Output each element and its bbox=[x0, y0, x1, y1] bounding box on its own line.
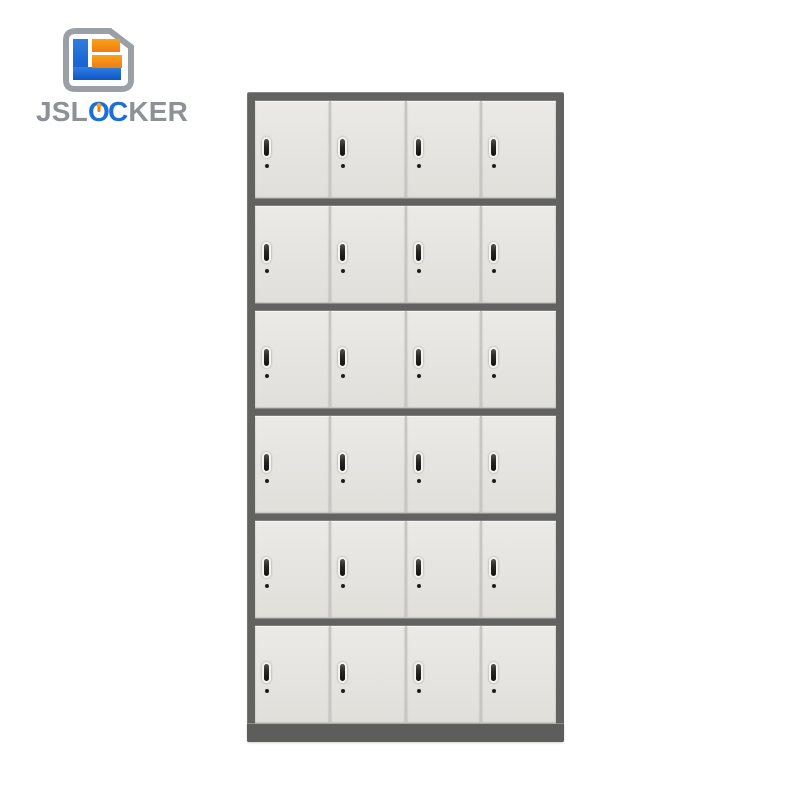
keyhole-icon bbox=[341, 479, 345, 483]
door-handle-icon bbox=[338, 137, 347, 158]
locker-door bbox=[482, 311, 556, 408]
logo-orange-top-bar bbox=[92, 39, 120, 52]
locker-row bbox=[255, 101, 556, 198]
locker-door bbox=[407, 626, 481, 723]
product-image: JSLOCKER bbox=[0, 0, 800, 800]
door-handle-icon bbox=[262, 557, 271, 578]
keyhole-icon bbox=[417, 374, 421, 378]
brand-logo-icon bbox=[63, 28, 134, 92]
door-handle-icon bbox=[262, 242, 271, 263]
keyhole-icon bbox=[341, 269, 345, 273]
door-handle-icon bbox=[414, 242, 423, 263]
door-handle-icon bbox=[414, 557, 423, 578]
keyhole-icon bbox=[417, 689, 421, 693]
locker-door bbox=[482, 626, 556, 723]
door-handle-icon bbox=[414, 347, 423, 368]
keyhole-icon bbox=[265, 374, 269, 378]
keyhole-icon bbox=[341, 584, 345, 588]
locker-door bbox=[482, 206, 556, 303]
locker-row bbox=[255, 311, 556, 408]
door-handle-icon bbox=[489, 452, 498, 473]
locker-row bbox=[255, 521, 556, 618]
keyhole-icon bbox=[265, 689, 269, 693]
door-handle-icon bbox=[338, 662, 347, 683]
door-handle-icon bbox=[338, 347, 347, 368]
locker-door bbox=[331, 206, 405, 303]
locker-door bbox=[407, 521, 481, 618]
locker-row bbox=[255, 416, 556, 513]
brand-letter-o: O bbox=[88, 98, 110, 126]
locker-door bbox=[407, 311, 481, 408]
door-handle-icon bbox=[414, 137, 423, 158]
keyhole-icon bbox=[341, 374, 345, 378]
keyhole-icon bbox=[492, 164, 496, 168]
keyhole-icon bbox=[492, 479, 496, 483]
keyhole-icon bbox=[417, 584, 421, 588]
locker-door bbox=[255, 101, 329, 198]
door-handle-icon bbox=[414, 662, 423, 683]
door-handle-icon bbox=[489, 242, 498, 263]
locker-door bbox=[482, 101, 556, 198]
brand-name-prefix: JSL bbox=[36, 96, 88, 127]
door-handle-icon bbox=[338, 557, 347, 578]
keyhole-icon bbox=[492, 689, 496, 693]
keyhole-icon bbox=[417, 164, 421, 168]
locker-door bbox=[255, 311, 329, 408]
keyhole-icon bbox=[265, 584, 269, 588]
door-handle-icon bbox=[489, 557, 498, 578]
brand-name: JSLOCKER bbox=[36, 98, 196, 126]
keyhole-mark-icon bbox=[96, 103, 101, 108]
door-handle-icon bbox=[489, 137, 498, 158]
door-handle-icon bbox=[338, 242, 347, 263]
locker-door bbox=[331, 416, 405, 513]
locker-base bbox=[247, 723, 564, 742]
locker-row bbox=[255, 206, 556, 303]
locker-door bbox=[331, 521, 405, 618]
locker-door bbox=[255, 206, 329, 303]
keyhole-icon bbox=[265, 269, 269, 273]
locker-door bbox=[331, 626, 405, 723]
brand-name-suffix: KER bbox=[128, 96, 188, 127]
door-handle-icon bbox=[489, 347, 498, 368]
locker-door bbox=[255, 626, 329, 723]
locker-door bbox=[407, 101, 481, 198]
keyhole-icon bbox=[265, 479, 269, 483]
locker-door bbox=[255, 416, 329, 513]
locker-door bbox=[482, 521, 556, 618]
brand-logo: JSLOCKER bbox=[36, 28, 196, 126]
locker-door bbox=[331, 101, 405, 198]
locker-door bbox=[255, 521, 329, 618]
locker-door bbox=[482, 416, 556, 513]
door-handle-icon bbox=[262, 347, 271, 368]
logo-orange-middle-bar bbox=[92, 55, 122, 68]
locker-cabinet bbox=[247, 92, 564, 742]
locker-door bbox=[331, 311, 405, 408]
keyhole-icon bbox=[492, 374, 496, 378]
keyhole-icon bbox=[417, 269, 421, 273]
door-handle-icon bbox=[262, 662, 271, 683]
locker-row bbox=[255, 626, 556, 723]
keyhole-icon bbox=[265, 164, 269, 168]
keyhole-icon bbox=[492, 584, 496, 588]
keyhole-icon bbox=[341, 689, 345, 693]
door-handle-icon bbox=[262, 452, 271, 473]
keyhole-icon bbox=[417, 479, 421, 483]
door-handle-icon bbox=[338, 452, 347, 473]
brand-letter-c: C bbox=[108, 96, 128, 127]
locker-door bbox=[407, 416, 481, 513]
keyhole-icon bbox=[492, 269, 496, 273]
door-handle-icon bbox=[262, 137, 271, 158]
door-handle-icon bbox=[489, 662, 498, 683]
logo-blue-bottom-bar bbox=[73, 67, 121, 80]
locker-door bbox=[407, 206, 481, 303]
door-handle-icon bbox=[414, 452, 423, 473]
keyhole-icon bbox=[341, 164, 345, 168]
locker-grid bbox=[255, 101, 556, 723]
